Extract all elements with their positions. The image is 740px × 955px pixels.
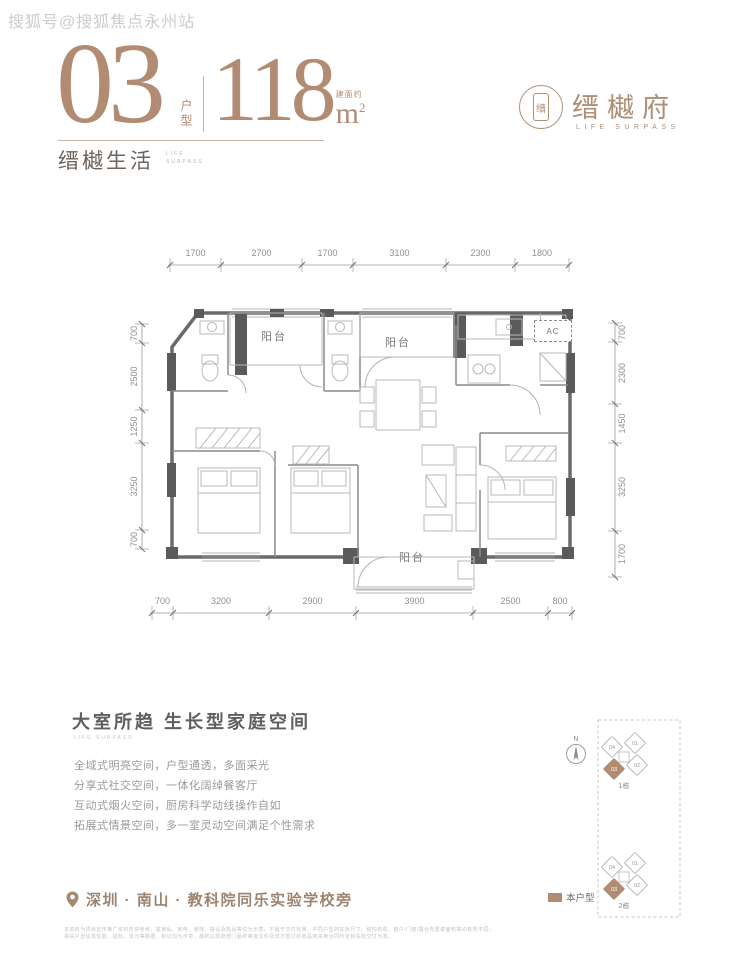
brand-logo-icon: 缙 [519,85,563,129]
location-text: 深圳 · 南山 · 教科院同乐实验学校旁 [86,889,353,910]
dimension-label: 3900 [404,596,424,606]
floorplan-walls [172,313,570,557]
ac-unit-box: AC [534,320,572,342]
unit-number: 03 [56,26,160,142]
dimension-label: 2500 [129,366,139,386]
brand-seal-character: 缙 [533,93,549,121]
dimension-label: 2300 [470,248,490,258]
room-label-balcony: 阳台 [261,328,287,344]
feature-bullet: 互动式烟火空间，厨房科学动线操作自如 [74,796,316,816]
features-subtitle: LIFE SURPASS [74,735,133,741]
floorplan-poster: 搜狐号@搜狐焦点永州站 03 户型 118 建面约 m2 缙樾生活 LIFE S… [0,0,740,955]
dimension-label: 1700 [317,248,337,258]
unit-diamond-label: 04 [609,745,615,751]
dimension-label: 3250 [129,476,139,496]
floorplan: 1700270017003100230018007003200290039002… [110,225,640,655]
dimension-label: 700 [129,532,139,547]
unit-diamond-label: 02 [634,763,640,769]
dimension-label: 3100 [389,248,409,258]
area-value: 118 [212,44,332,134]
slogan: 缙樾生活 [58,145,154,175]
area-unit: 建面约 m2 [336,89,366,128]
room-label-balcony: 阳台 [399,549,425,565]
disclaimer: 本资料为项目宣传推广资料仅供参考，其家私、家电、装饰、摆设及陈设等仅为示意，不属… [64,927,620,941]
dimension-label: 700 [617,325,627,340]
feature-bullet: 分享式社交空间，一体化阔绰餐客厅 [74,776,316,796]
area-sqm: m2 [336,97,366,130]
building-label: 2栋 [619,901,630,910]
legend-label: 本户型 [566,892,595,904]
building-label: 1栋 [619,781,630,790]
dimension-label: 2900 [302,596,322,606]
compass-north-label: N [573,736,578,743]
brand-name: 缙樾府 [572,86,677,125]
area-block: 118 建面约 m2 [212,44,365,134]
feature-bullet: 拓展式情景空间，多一室灵动空间满足个性需求 [74,816,316,836]
unit-diamond-label: 01 [632,741,638,747]
header-rule [58,140,324,141]
legend-swatch [548,893,562,902]
unit-diamond-label: 01 [632,861,638,867]
dimension-label: 2500 [500,596,520,606]
floorplan-drawing: 1700270017003100230018007003200290039002… [110,225,640,655]
siteplan-drawing: N 040103021栋 040103022栋 本户型 [545,705,705,940]
dimension-label: 800 [552,596,567,606]
unit-diamond-label: 03 [611,767,617,773]
compass-needle [574,746,579,761]
location-pin-icon [66,891,79,908]
dimension-label: 1700 [185,248,205,258]
brand-tagline: LIFE SURPASS [576,124,680,131]
dimension-label: 2700 [251,248,271,258]
building-cluster: 040103022栋 [601,852,647,910]
unit-diamond-label: 03 [611,887,617,893]
feature-list: 全域式明亮空间，户型通透，多面采光 分享式社交空间，一体化阔绰餐客厅 互动式烟火… [74,756,316,836]
dimension-label: 700 [155,596,170,606]
dimension-label: 2300 [617,363,627,383]
room-label-balcony: 阳台 [385,334,411,350]
slogan-subtitle: LIFE SURPASS [166,151,204,166]
unit-diamond-label: 02 [634,883,640,889]
feature-bullet: 全域式明亮空间，户型通透，多面采光 [74,756,316,776]
dimension-label: 3250 [617,477,627,497]
dimension-label: 1250 [129,416,139,436]
dimension-label: 1700 [617,544,627,564]
dimension-layer: 1700270017003100230018007003200290039002… [129,248,627,620]
dimension-label: 700 [129,326,139,341]
dimension-label: 1800 [532,248,552,258]
floorplan-doors [228,313,565,587]
building-cluster: 040103021栋 [601,732,647,790]
floorplan-partitions [172,313,568,557]
dimension-label: 1450 [617,413,627,433]
unit-diamond-label: 04 [609,865,615,871]
unit-type-label: 户型 [178,99,195,129]
siteplan: N 040103021栋 040103022栋 本户型 [545,705,705,940]
dimension-label: 3200 [211,596,231,606]
location-row: 深圳 · 南山 · 教科院同乐实验学校旁 [66,889,353,910]
features-title: 大室所趋 生长型家庭空间 [72,708,311,734]
title-divider [203,76,204,132]
